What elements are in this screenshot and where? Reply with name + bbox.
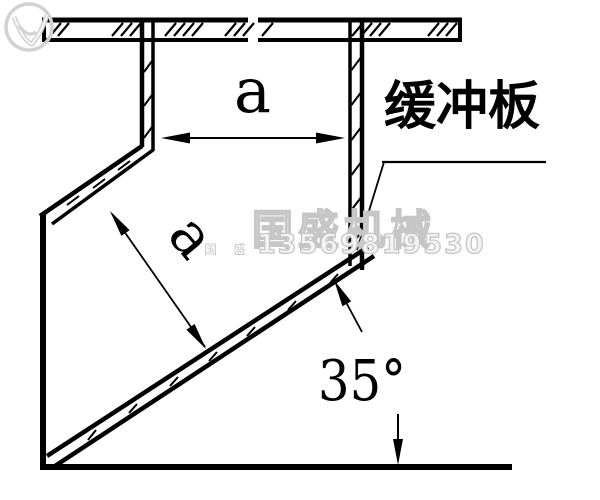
gap-dim-lower-arrow-icon — [186, 324, 206, 349]
part-label: 缓冲板 — [384, 76, 540, 137]
inclined-left-wall — [40, 146, 153, 224]
right-wall-hatching — [352, 58, 361, 245]
width-dim-left-arrow-icon — [161, 133, 190, 144]
inclined-wall-hatching — [67, 161, 130, 205]
width-dimension-label: a — [234, 54, 271, 127]
width-dim-right-arrow-icon — [316, 133, 345, 144]
buffer-plate-hatching — [88, 274, 338, 440]
angle-plate-arrow-icon — [334, 280, 351, 306]
part-callout: 缓冲板 — [357, 76, 546, 250]
technical-drawing: a a 35° 缓冲板 国 — [0, 0, 600, 500]
gap-dimension: a — [110, 201, 230, 349]
gap-dimension-label: a — [155, 201, 229, 271]
inclined-wall-outer-line — [40, 146, 142, 216]
flange-hatching — [50, 23, 457, 36]
gap-dim-upper-arrow-icon — [110, 211, 130, 236]
left-wall-hatching — [144, 61, 152, 138]
right-wall — [350, 20, 362, 270]
angle-label: 35° — [318, 349, 406, 414]
inclined-wall-inner-line — [52, 150, 153, 224]
top-flange — [42, 18, 462, 42]
width-dimension: a — [161, 54, 345, 144]
angle-belt-arrow-icon — [393, 439, 403, 465]
angle-annotation: 35° — [318, 280, 406, 465]
drawing-canvas: a a 35° 缓冲板 — [0, 0, 600, 500]
